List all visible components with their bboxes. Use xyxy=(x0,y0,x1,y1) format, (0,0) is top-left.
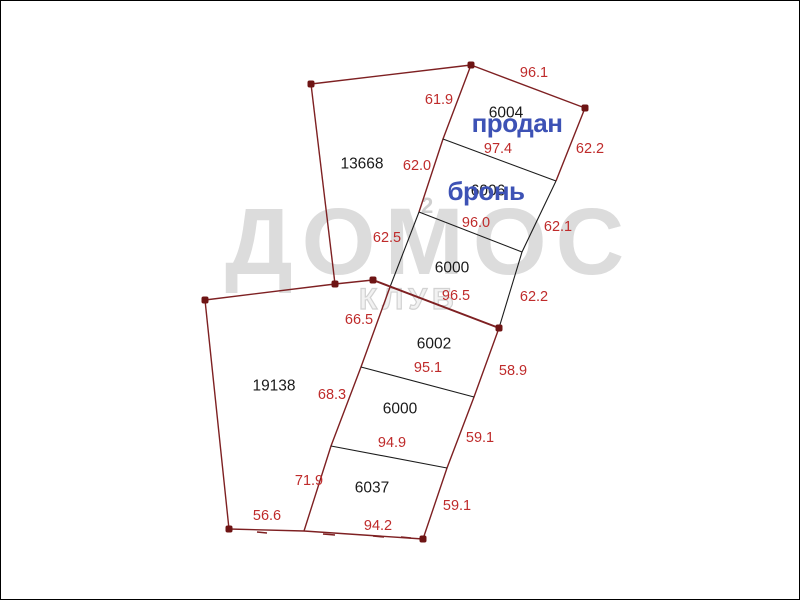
measurement-label-961: 96.1 xyxy=(520,66,548,81)
measurement-label-719: 71.9 xyxy=(295,474,323,489)
plot-label-6002: 6002 xyxy=(417,336,451,352)
measurement-label-625: 62.5 xyxy=(373,231,401,246)
measurement-label-665: 66.5 xyxy=(345,313,373,328)
measurement-label-622b: 62.2 xyxy=(520,290,548,305)
measurement-label-620: 62.0 xyxy=(403,159,431,174)
map-labels-layer: 96.161.962.297.462.096.062.162.596.562.2… xyxy=(1,1,800,600)
measurement-label-621: 62.1 xyxy=(544,220,572,235)
plot-label-13668: 13668 xyxy=(340,156,383,172)
measurement-label-591b: 59.1 xyxy=(443,499,471,514)
measurement-label-960: 96.0 xyxy=(462,216,490,231)
measurement-label-566: 56.6 xyxy=(253,509,281,524)
plot-label-6000a: 6000 xyxy=(435,260,469,276)
measurement-label-965: 96.5 xyxy=(442,289,470,304)
measurement-label-619: 61.9 xyxy=(425,93,453,108)
measurement-label-942: 94.2 xyxy=(364,519,392,534)
plot-label-6037: 6037 xyxy=(355,480,389,496)
plot-label-6000b: 6000 xyxy=(383,401,417,417)
status-label-prodan: продан xyxy=(472,110,563,136)
measurement-label-589: 58.9 xyxy=(499,364,527,379)
measurement-label-683: 68.3 xyxy=(318,388,346,403)
measurement-label-622a: 62.2 xyxy=(576,142,604,157)
plot-label-19138: 19138 xyxy=(252,378,295,394)
measurement-label-974: 97.4 xyxy=(484,142,512,157)
measurement-label-949: 94.9 xyxy=(378,436,406,451)
measurement-label-951: 95.1 xyxy=(414,361,442,376)
plot-map-canvas: ДОМОС 2 КЛУБ xyxy=(0,0,800,600)
status-label-bron: бронь xyxy=(447,178,524,204)
measurement-label-591a: 59.1 xyxy=(466,431,494,446)
